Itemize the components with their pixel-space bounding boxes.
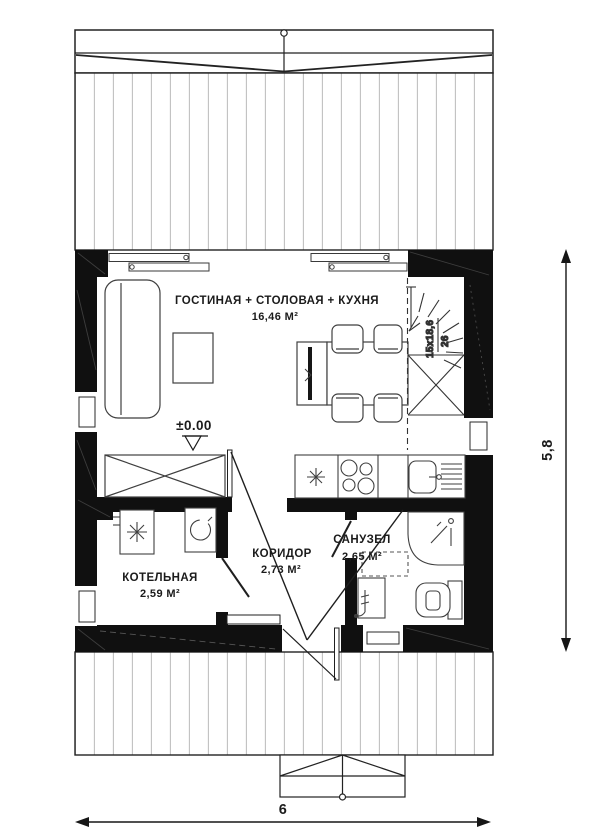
toilet <box>416 581 462 619</box>
room-area-corridor: 2,73 М² <box>261 564 301 576</box>
dimension-width-label: 6 <box>279 802 288 818</box>
bottom-terrace-deck <box>75 652 493 755</box>
bathroom-fixtures <box>355 512 465 619</box>
boiler-door-leaf <box>222 558 249 597</box>
sofa <box>105 280 160 418</box>
coffee-table <box>173 333 213 383</box>
door-leaf-open <box>227 615 280 624</box>
floor-plan-drawing: 15x18,6 26 <box>0 0 600 830</box>
floor-plan-page: 15x18,6 26 <box>0 0 600 830</box>
room-label-corridor: КОРИДОР <box>252 548 312 560</box>
room-label-boiler: КОТЕЛЬНАЯ <box>122 572 197 584</box>
room-area-boiler: 2,59 М² <box>140 588 180 600</box>
dimension-width: 6 <box>75 802 491 827</box>
stairs-step-note: 15x18,6 <box>425 320 436 358</box>
boiler-room-equipment <box>113 508 216 554</box>
boiler-icon <box>127 522 147 542</box>
room-label-living: ГОСТИНАЯ + СТОЛОВАЯ + КУХНЯ <box>175 295 379 307</box>
door-frame <box>228 450 233 497</box>
room-label-bathroom: САНУЗЕЛ <box>333 534 391 546</box>
entrance-porch <box>280 755 405 800</box>
room-area-living: 16,46 М² <box>252 311 299 323</box>
shower <box>408 512 464 565</box>
stairs: 15x18,6 26 <box>406 278 464 450</box>
wardrobe <box>105 455 225 497</box>
window <box>79 591 95 622</box>
roof-overhang <box>75 30 493 73</box>
top-terrace-deck <box>75 73 493 250</box>
washing-machine <box>185 508 216 552</box>
stairs-width-note: 26 <box>440 335 451 347</box>
sliding-window <box>129 263 209 271</box>
sliding-window <box>109 254 189 262</box>
elevation-label: ±0.00 <box>176 418 212 433</box>
window <box>470 422 487 450</box>
washbasin <box>358 578 385 618</box>
room-area-bathroom: 2,65 М² <box>342 551 382 563</box>
sliding-window <box>311 254 389 262</box>
entrance-door-leaf <box>335 628 340 680</box>
dimension-depth-label: 5,8 <box>540 439 556 461</box>
ridge-point-icon <box>281 30 287 36</box>
window <box>79 397 95 427</box>
dimension-depth: 5,8 <box>540 249 571 652</box>
window <box>367 632 399 644</box>
sliding-window <box>329 263 407 271</box>
elevation-mark: ±0.00 <box>176 418 212 450</box>
sliding-windows <box>109 254 407 272</box>
kitchen-counter <box>295 455 465 498</box>
